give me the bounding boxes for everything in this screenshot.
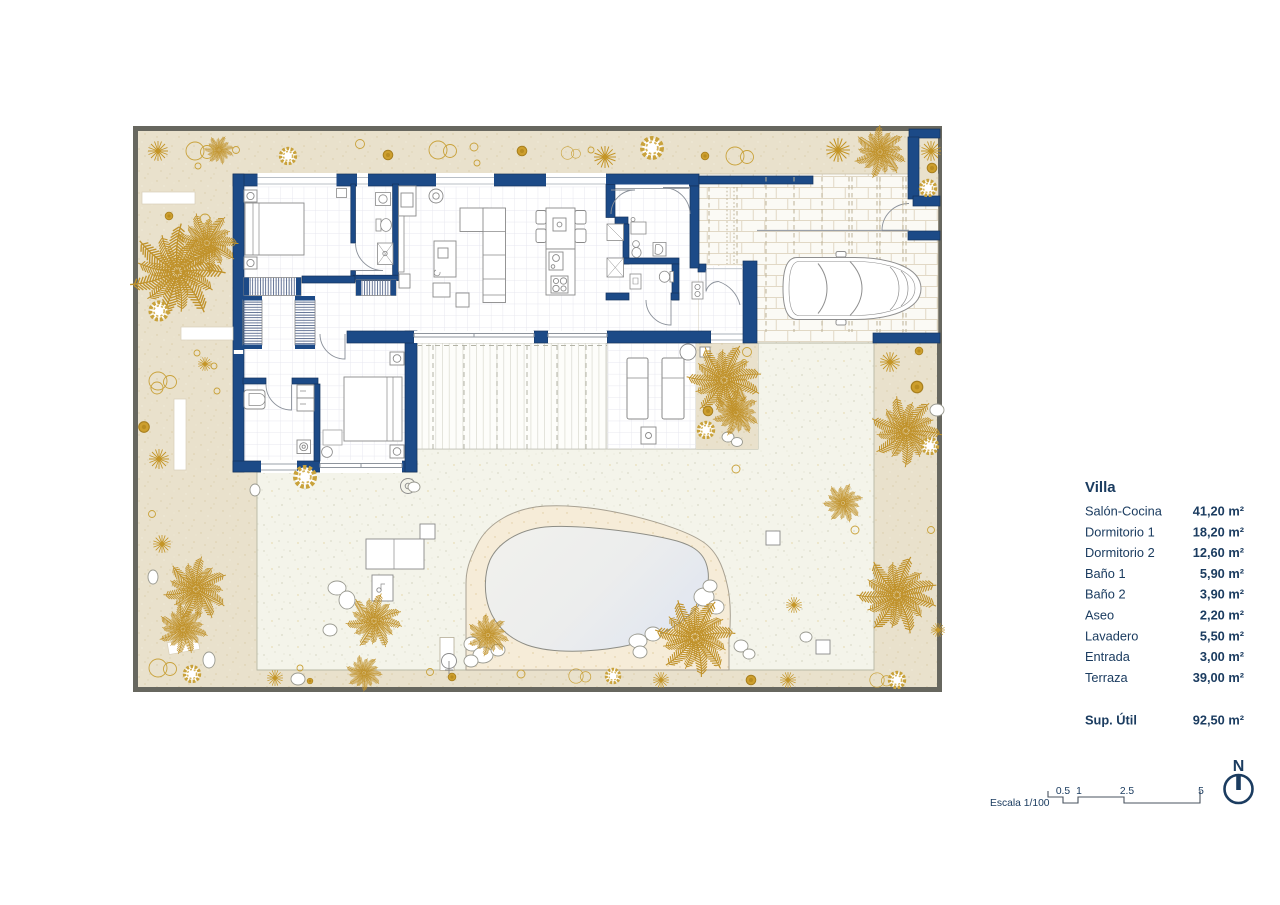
svg-text:Dormitorio 1: Dormitorio 1 (1085, 524, 1155, 539)
svg-text:5,90 m²: 5,90 m² (1200, 566, 1244, 581)
svg-text:3,90 m²: 3,90 m² (1200, 587, 1244, 602)
svg-text:Aseo: Aseo (1085, 608, 1114, 623)
svg-text:Salón-Cocina: Salón-Cocina (1085, 504, 1163, 519)
svg-text:Escala 1/100: Escala 1/100 (990, 798, 1050, 809)
svg-text:Lavadero: Lavadero (1085, 628, 1138, 643)
svg-text:2.5: 2.5 (1120, 786, 1135, 797)
svg-text:Entrada: Entrada (1085, 649, 1131, 664)
svg-text:39,00 m²: 39,00 m² (1193, 670, 1244, 685)
svg-text:Terraza: Terraza (1085, 670, 1129, 685)
svg-text:Villa: Villa (1085, 479, 1116, 496)
svg-text:Baño 1: Baño 1 (1085, 566, 1126, 581)
svg-text:92,50 m²: 92,50 m² (1193, 713, 1244, 728)
svg-text:2,20 m²: 2,20 m² (1200, 608, 1244, 623)
svg-text:5: 5 (1198, 786, 1204, 797)
svg-text:41,20 m²: 41,20 m² (1193, 504, 1244, 519)
svg-text:3,00 m²: 3,00 m² (1200, 649, 1244, 664)
svg-text:Baño 2: Baño 2 (1085, 587, 1126, 602)
svg-text:Sup. Útil: Sup. Útil (1085, 713, 1137, 728)
svg-text:Dormitorio 2: Dormitorio 2 (1085, 545, 1155, 560)
svg-text:18,20 m²: 18,20 m² (1193, 524, 1244, 539)
svg-text:0.5: 0.5 (1056, 786, 1071, 797)
svg-text:12,60 m²: 12,60 m² (1193, 545, 1244, 560)
svg-text:N: N (1233, 758, 1245, 775)
svg-text:1: 1 (1076, 786, 1082, 797)
svg-text:5,50 m²: 5,50 m² (1200, 628, 1244, 643)
